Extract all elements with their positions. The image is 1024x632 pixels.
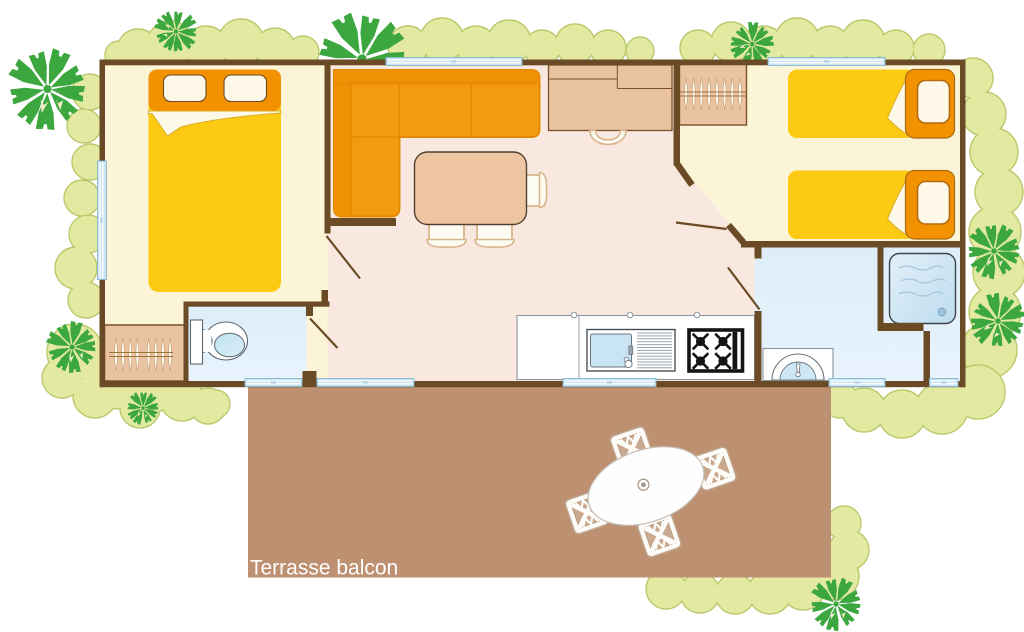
svg-text:Terrasse balcon: Terrasse balcon <box>250 557 398 580</box>
